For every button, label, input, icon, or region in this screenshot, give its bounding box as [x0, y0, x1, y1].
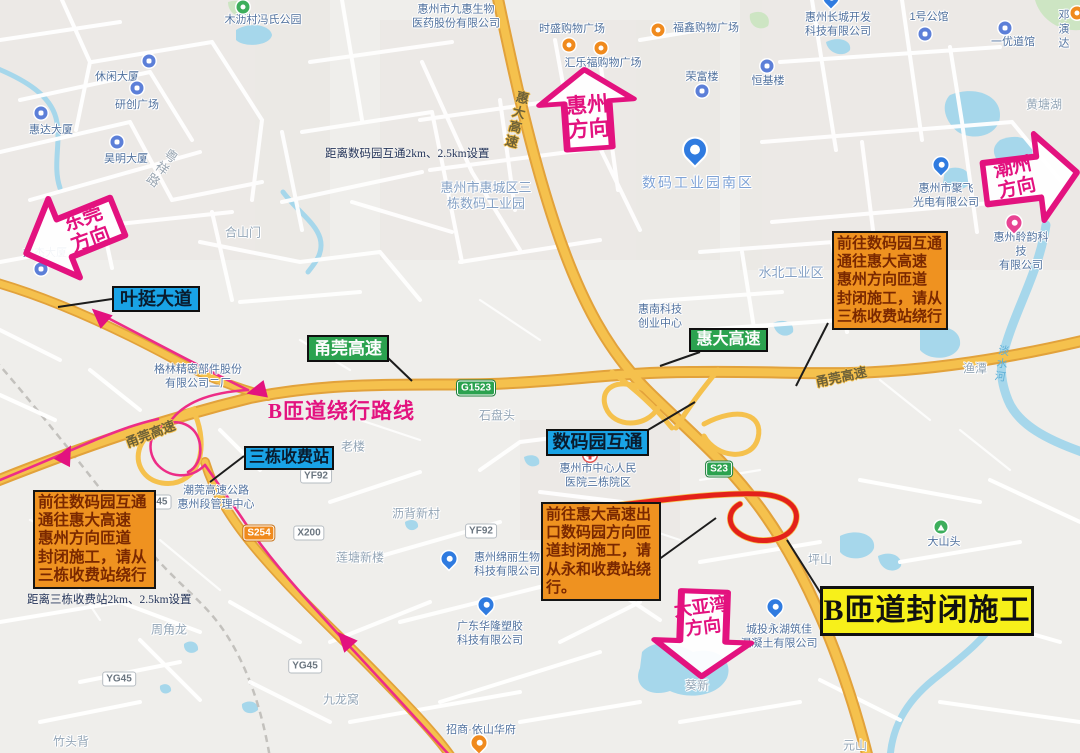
park-icon[interactable] — [237, 1, 250, 14]
notice-line: 三栋收费站绕行 — [837, 308, 943, 326]
pino-icon[interactable] — [468, 732, 489, 753]
road-name-label: 淡水河 — [990, 344, 1011, 385]
place-label: 数码工业园南区 — [642, 174, 754, 192]
bldg-icon[interactable] — [761, 60, 774, 73]
bldg-icon[interactable] — [696, 85, 709, 98]
bldg-icon[interactable] — [919, 28, 932, 41]
shop-icon[interactable] — [652, 24, 665, 37]
poi-label: 广东华隆塑胶 科技有限公司 — [457, 620, 523, 648]
poi-label: 惠州市聚飞 光电有限公司 — [913, 182, 979, 210]
place-label: 沥背新村 — [392, 507, 440, 522]
detour-route-title: B匝道绕行路线 — [268, 395, 415, 425]
place-label: 老楼 — [341, 440, 365, 455]
place-label: 黄塘湖 — [1026, 98, 1062, 113]
place-label: 葵新 — [685, 679, 709, 694]
notice-line: 口数码园方向匝 — [546, 524, 656, 542]
poi-label: 时盛购物广场 — [539, 23, 605, 37]
road-name-label: 粤祥路 — [140, 144, 182, 192]
road-shield: YF92 — [465, 524, 497, 539]
place-label: 元山 — [843, 739, 867, 753]
notice-line: 通往惠大高速 — [837, 253, 943, 271]
notice-line: 通往惠大高速 — [38, 512, 151, 530]
poi-label: 惠州长城开发 科技有限公司 — [805, 11, 871, 39]
road-shield: S254 — [243, 526, 274, 541]
traffic-detour-map: 木沥村冯氏公园休闲大厦研创广场惠达大厦昊明大厦龙杰大厦惠州市九惠生物 医药股份有… — [0, 0, 1080, 753]
notice-line: 前往数码园互通 — [38, 494, 151, 512]
road-name-label: 惠大高速 — [500, 89, 533, 152]
notice-box-left: 前往数码园互通 通往惠大高速 惠州方向匝道 封闭施工，请从 三栋收费站绕行 — [33, 490, 156, 589]
place-label: 惠州市惠城区三 栋数码工业园 — [440, 180, 531, 213]
mtn-icon[interactable] — [935, 521, 948, 534]
road-shield: X200 — [293, 526, 324, 541]
place-label: 合山门 — [225, 226, 261, 241]
notice-line: 行。 — [546, 579, 656, 597]
notice-box-right: 前往数码园互通 通往惠大高速 惠州方向匝道 封闭施工，请从 三栋收费站绕行 — [832, 231, 948, 330]
ramp-closure-label: B匝道封闭施工 — [820, 586, 1034, 636]
bldg-icon[interactable] — [143, 55, 156, 68]
notice-line: 三栋收费站绕行 — [38, 567, 151, 585]
huizhou-direction-text: 惠州方向 — [551, 92, 624, 144]
arrow-text-line: 惠州 — [565, 92, 609, 119]
notice-line: 惠州方向匝道 — [38, 530, 151, 548]
arrow-text-line: 方向 — [567, 115, 611, 142]
place-label: 九龙窝 — [323, 693, 359, 708]
road-name-label: 甬莞高速 — [122, 415, 177, 451]
notice-line: 封闭施工，请从 — [38, 549, 151, 567]
bldg-icon[interactable] — [35, 107, 48, 120]
road-name-label: 甬莞高速 — [814, 361, 869, 390]
place-label: 莲塘新楼 — [336, 551, 384, 566]
distance-note-sandong-toll: 距离三栋收费站2km、2.5km设置 — [27, 591, 192, 607]
notice-line: 道封闭施工，请 — [546, 542, 656, 560]
label-yeting-avenue: 叶挺大道 — [112, 286, 200, 312]
road-shield: YG45 — [288, 659, 322, 674]
place-label: 周角龙 — [151, 623, 187, 638]
poi-label: 邓演达 — [1056, 9, 1072, 50]
shop-icon[interactable] — [563, 39, 576, 52]
road-shield: YF92 — [300, 469, 332, 484]
arrow-text-line: 方向 — [684, 615, 722, 639]
poi-label: 1号公馆 — [909, 11, 948, 25]
road-shield: G1523 — [457, 381, 495, 396]
poi-label: 昊明大厦 — [104, 153, 148, 167]
road-shield: YG45 — [102, 672, 136, 687]
poi-label: 恒基楼 — [752, 75, 785, 89]
distance-note-digital-park: 距离数码园互通2km、2.5km设置 — [325, 145, 490, 161]
pinb-icon[interactable] — [930, 154, 951, 175]
poi-label: 一优道馆 — [991, 36, 1035, 50]
poi-label: 惠州绵丽生物 科技有限公司 — [474, 551, 540, 579]
poi-label: 潮莞高速公路 惠州段管理中心 — [178, 484, 255, 512]
digital-park-south-pin[interactable] — [679, 134, 710, 165]
road-shield: S23 — [706, 462, 732, 477]
poi-label: 福鑫购物广场 — [673, 22, 739, 36]
pinb-icon[interactable] — [438, 548, 459, 569]
label-huida-expressway: 惠大高速 — [689, 328, 768, 352]
poi-label: 荣富楼 — [686, 71, 719, 85]
pinb-icon[interactable] — [764, 596, 785, 617]
place-label: 坪山 — [808, 553, 832, 568]
notice-line: 从永和收费站绕 — [546, 561, 656, 579]
label-shumayuan-interchange: 数码园互通 — [546, 429, 649, 456]
place-label: 渔潭 — [963, 362, 987, 377]
place-label: 竹头背 — [53, 735, 89, 750]
poi-label: 木沥村冯氏公园 — [225, 14, 302, 28]
bldg-icon[interactable] — [999, 22, 1012, 35]
poi-label: 惠州聆韵科技 有限公司 — [992, 231, 1051, 272]
bldg-icon[interactable] — [111, 136, 124, 149]
poi-label: 惠达大厦 — [29, 124, 73, 138]
poi-label: 惠南科技 创业中心 — [638, 303, 682, 331]
poi-label: 大山头 — [928, 536, 961, 550]
poi-label: 惠州市九惠生物 医药股份有限公司 — [412, 3, 500, 31]
notice-line: 前往数码园互通 — [837, 235, 943, 253]
notice-line: 惠州方向匝道 — [837, 271, 943, 289]
pinb-icon[interactable] — [820, 0, 841, 8]
shop-icon[interactable] — [595, 42, 608, 55]
poi-label: 格林精密部件股份 有限公司二厂 — [154, 363, 242, 391]
notice-line: 封闭施工，请从 — [837, 290, 943, 308]
shop-icon[interactable] — [1071, 7, 1080, 20]
notice-box-bottom: 前往惠大高速出 口数码园方向匝 道封闭施工，请 从永和收费站绕 行。 — [541, 502, 661, 601]
poi-label: 研创广场 — [115, 99, 159, 113]
pinb-icon[interactable] — [475, 594, 496, 615]
label-sandong-toll-station: 三栋收费站 — [244, 446, 334, 470]
notice-line: 前往惠大高速出 — [546, 506, 656, 524]
label-yongguan-expressway: 甬莞高速 — [307, 335, 389, 362]
place-label: 水北工业区 — [758, 265, 823, 281]
place-label: 石盘头 — [479, 409, 515, 424]
poi-label: 惠州市中心人民 医院三栋院区 — [560, 462, 637, 490]
bldg-icon[interactable] — [131, 82, 144, 95]
